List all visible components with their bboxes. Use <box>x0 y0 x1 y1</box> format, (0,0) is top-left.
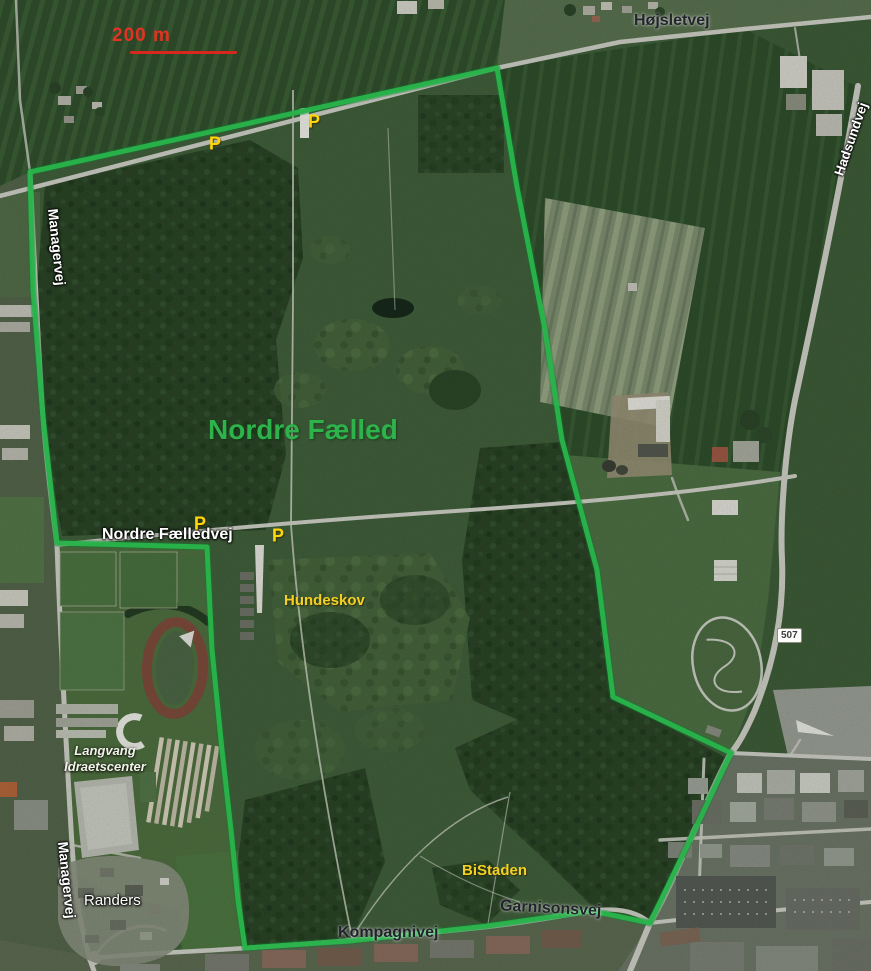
parking-marker-3: P <box>194 514 206 535</box>
scale-bar-line <box>130 51 237 54</box>
parking-marker-1: P <box>209 134 221 155</box>
satellite-map: 200 m Højsletvej Hadsundvej Managervej M… <box>0 0 871 971</box>
parking-marker-4: P <box>272 526 284 547</box>
parking-marker-2: P <box>308 112 320 133</box>
imagery-grain <box>0 0 871 971</box>
satellite-imagery <box>0 0 871 971</box>
scale-bar-label: 200 m <box>112 25 237 47</box>
scale-bar: 200 m <box>112 25 237 54</box>
